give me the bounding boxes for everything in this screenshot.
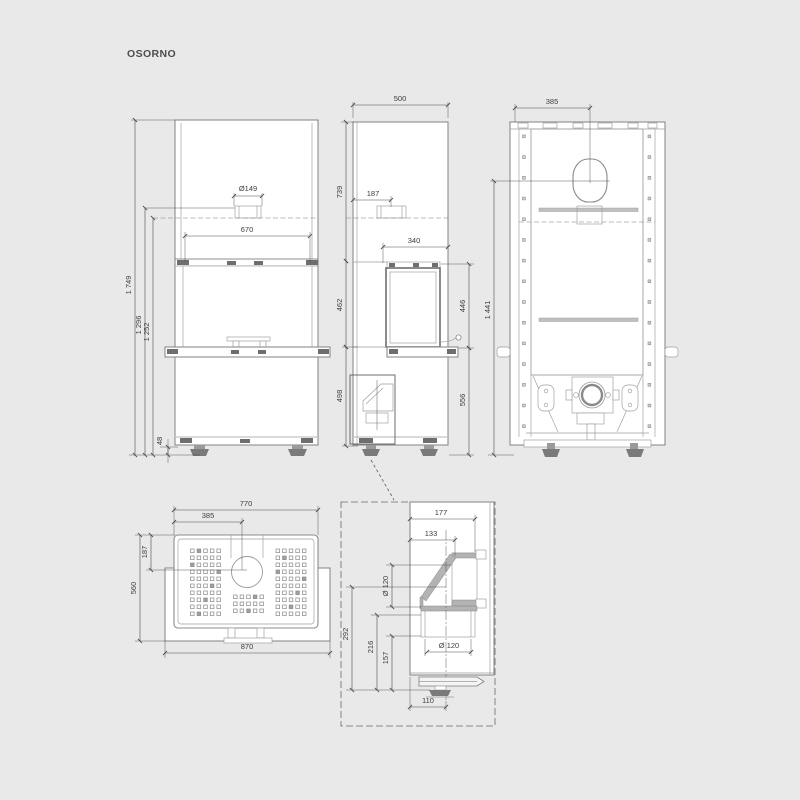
generated-detail bbox=[217, 556, 221, 560]
generated-detail bbox=[276, 556, 280, 560]
generated-detail bbox=[289, 598, 293, 602]
generated-detail bbox=[191, 556, 195, 560]
generated-detail bbox=[296, 584, 300, 588]
generated-detail bbox=[197, 570, 201, 574]
generated-detail bbox=[197, 563, 201, 567]
generated-detail bbox=[253, 602, 257, 606]
generated-detail bbox=[210, 570, 214, 574]
dim-detail-216: 216 bbox=[366, 641, 375, 654]
generated-detail bbox=[197, 556, 201, 560]
generated-detail bbox=[234, 595, 238, 599]
generated-detail bbox=[648, 218, 651, 221]
dim-top-flue-x: 385 bbox=[202, 511, 215, 520]
generated-detail bbox=[191, 549, 195, 553]
generated-detail bbox=[296, 563, 300, 567]
generated-detail bbox=[234, 609, 238, 613]
generated-detail bbox=[197, 577, 201, 581]
generated-detail bbox=[302, 605, 306, 609]
generated-detail bbox=[296, 591, 300, 595]
generated-detail bbox=[217, 598, 221, 602]
generated-detail bbox=[289, 570, 293, 574]
generated-detail bbox=[296, 598, 300, 602]
front-firebox-opening bbox=[183, 266, 312, 347]
generated-detail bbox=[296, 556, 300, 560]
generated-detail bbox=[523, 176, 526, 179]
drawing-title: OSORNO bbox=[127, 48, 176, 60]
generated-detail bbox=[197, 605, 201, 609]
generated-detail bbox=[260, 595, 264, 599]
dim-front-total-height: 1 749 bbox=[124, 276, 133, 295]
generated-detail bbox=[276, 612, 280, 616]
side-flue-collar bbox=[377, 206, 406, 218]
generated-detail bbox=[197, 584, 201, 588]
generated-detail bbox=[204, 577, 208, 581]
dim-rear-flue-offset: 385 bbox=[546, 97, 559, 106]
dim-detail-depth: 177 bbox=[435, 508, 448, 517]
generated-detail bbox=[276, 570, 280, 574]
front-shelf bbox=[165, 347, 330, 357]
generated-detail bbox=[217, 549, 221, 553]
generated-detail bbox=[240, 595, 244, 599]
dim-side-depth: 500 bbox=[394, 94, 407, 103]
generated-detail bbox=[210, 556, 214, 560]
side-door-glass bbox=[386, 268, 440, 347]
generated-detail bbox=[296, 605, 300, 609]
generated-detail bbox=[523, 135, 526, 138]
generated-detail bbox=[648, 342, 651, 345]
generated-detail bbox=[296, 549, 300, 553]
generated-detail bbox=[191, 605, 195, 609]
generated-detail bbox=[276, 598, 280, 602]
generated-detail bbox=[247, 595, 251, 599]
generated-detail bbox=[302, 591, 306, 595]
generated-detail bbox=[523, 363, 526, 366]
generated-detail bbox=[523, 425, 526, 428]
generated-detail bbox=[197, 598, 201, 602]
generated-detail bbox=[648, 197, 651, 200]
generated-detail bbox=[276, 563, 280, 567]
generated-detail bbox=[204, 598, 208, 602]
dim-rear-connection-height: 1 441 bbox=[483, 301, 492, 320]
generated-detail bbox=[247, 602, 251, 606]
rear-brace-upper bbox=[539, 208, 638, 212]
generated-detail bbox=[217, 563, 221, 567]
generated-detail bbox=[289, 577, 293, 581]
dim-detail-inner-depth: 133 bbox=[425, 529, 438, 538]
generated-detail bbox=[289, 549, 293, 553]
generated-detail bbox=[210, 549, 214, 553]
generated-detail bbox=[523, 301, 526, 304]
generated-detail bbox=[523, 156, 526, 159]
detail-bottom-duct bbox=[421, 611, 475, 637]
generated-detail bbox=[296, 577, 300, 581]
generated-detail bbox=[276, 549, 280, 553]
generated-detail bbox=[191, 591, 195, 595]
generated-detail bbox=[283, 612, 287, 616]
generated-detail bbox=[260, 602, 264, 606]
generated-detail bbox=[247, 609, 251, 613]
generated-detail bbox=[217, 605, 221, 609]
generated-detail bbox=[204, 584, 208, 588]
generated-detail bbox=[289, 591, 293, 595]
generated-detail bbox=[217, 591, 221, 595]
generated-detail bbox=[302, 577, 306, 581]
dim-side-door-height-right: 446 bbox=[458, 300, 467, 313]
generated-detail bbox=[204, 612, 208, 616]
generated-detail bbox=[210, 584, 214, 588]
dim-front-flue-center-height: 1 252 bbox=[142, 323, 151, 342]
dim-side-upper-height: 739 bbox=[335, 186, 344, 199]
dim-detail-pipe-diameter: Ø 120 bbox=[381, 576, 390, 596]
generated-detail bbox=[648, 321, 651, 324]
generated-detail bbox=[204, 556, 208, 560]
generated-detail bbox=[302, 570, 306, 574]
dim-detail-duct-diameter: Ø 120 bbox=[439, 641, 459, 650]
generated-detail bbox=[302, 584, 306, 588]
generated-detail bbox=[276, 591, 280, 595]
dim-side-flue-offset: 187 bbox=[367, 189, 380, 198]
generated-detail bbox=[289, 605, 293, 609]
generated-detail bbox=[523, 280, 526, 283]
generated-detail bbox=[276, 584, 280, 588]
generated-detail bbox=[276, 605, 280, 609]
generated-detail bbox=[260, 609, 264, 613]
generated-detail bbox=[648, 156, 651, 159]
generated-detail bbox=[234, 602, 238, 606]
dim-side-front-depth: 340 bbox=[408, 236, 421, 245]
dim-front-foot-height: 48 bbox=[155, 437, 164, 445]
generated-detail bbox=[648, 404, 651, 407]
generated-detail bbox=[648, 383, 651, 386]
dim-detail-110: 110 bbox=[422, 696, 434, 705]
generated-detail bbox=[289, 612, 293, 616]
generated-detail bbox=[283, 591, 287, 595]
generated-detail bbox=[523, 404, 526, 407]
generated-detail bbox=[204, 591, 208, 595]
generated-detail bbox=[210, 612, 214, 616]
dim-side-base-height-left: 498 bbox=[335, 390, 344, 403]
generated-detail bbox=[191, 584, 195, 588]
generated-detail bbox=[240, 609, 244, 613]
generated-detail bbox=[302, 556, 306, 560]
generated-detail bbox=[217, 584, 221, 588]
generated-detail bbox=[210, 605, 214, 609]
generated-detail bbox=[283, 584, 287, 588]
dim-top-flue-y: 187 bbox=[140, 546, 149, 559]
generated-detail bbox=[283, 549, 287, 553]
generated-detail bbox=[253, 609, 257, 613]
dim-top-shelf-width: 870 bbox=[241, 642, 254, 651]
generated-detail bbox=[302, 612, 306, 616]
generated-detail bbox=[648, 239, 651, 242]
generated-detail bbox=[210, 598, 214, 602]
generated-detail bbox=[302, 549, 306, 553]
generated-detail bbox=[217, 577, 221, 581]
generated-detail bbox=[648, 135, 651, 138]
dim-side-door-height-left: 462 bbox=[335, 299, 344, 312]
generated-detail bbox=[204, 563, 208, 567]
dim-side-base-height-right: 556 bbox=[458, 394, 467, 407]
generated-detail bbox=[523, 218, 526, 221]
generated-detail bbox=[283, 577, 287, 581]
generated-detail bbox=[648, 301, 651, 304]
osorno-dimension-drawing: OSORNO bbox=[0, 0, 800, 800]
generated-detail bbox=[210, 563, 214, 567]
generated-detail bbox=[296, 612, 300, 616]
generated-detail bbox=[289, 556, 293, 560]
generated-detail bbox=[302, 598, 306, 602]
generated-detail bbox=[523, 321, 526, 324]
dim-detail-292: 292 bbox=[341, 628, 350, 641]
generated-detail bbox=[648, 425, 651, 428]
generated-detail bbox=[283, 598, 287, 602]
generated-detail bbox=[648, 176, 651, 179]
technical-drawing-page: OSORNO bbox=[0, 0, 800, 800]
generated-detail bbox=[197, 591, 201, 595]
top-flue-hole bbox=[232, 557, 263, 588]
generated-detail bbox=[253, 595, 257, 599]
dim-front-opening-width: 670 bbox=[241, 225, 254, 234]
generated-detail bbox=[648, 259, 651, 262]
generated-detail bbox=[648, 280, 651, 283]
generated-detail bbox=[197, 549, 201, 553]
generated-detail bbox=[191, 563, 195, 567]
generated-detail bbox=[217, 570, 221, 574]
generated-detail bbox=[283, 563, 287, 567]
generated-detail bbox=[283, 570, 287, 574]
generated-detail bbox=[289, 584, 293, 588]
generated-detail bbox=[204, 605, 208, 609]
generated-detail bbox=[191, 570, 195, 574]
dim-detail-157: 157 bbox=[381, 652, 390, 665]
generated-detail bbox=[204, 549, 208, 553]
dim-top-body-width: 770 bbox=[240, 499, 253, 508]
generated-detail bbox=[283, 556, 287, 560]
generated-detail bbox=[197, 612, 201, 616]
rear-view: 385 1 441 bbox=[483, 97, 678, 457]
generated-detail bbox=[523, 383, 526, 386]
generated-detail bbox=[523, 239, 526, 242]
generated-detail bbox=[191, 612, 195, 616]
generated-detail bbox=[191, 598, 195, 602]
generated-detail bbox=[210, 577, 214, 581]
generated-detail bbox=[523, 342, 526, 345]
generated-detail bbox=[210, 591, 214, 595]
dim-front-flue-diameter: Ø149 bbox=[239, 184, 257, 193]
generated-detail bbox=[276, 577, 280, 581]
generated-detail bbox=[191, 577, 195, 581]
generated-detail bbox=[648, 363, 651, 366]
generated-detail bbox=[283, 605, 287, 609]
generated-detail bbox=[217, 612, 221, 616]
generated-detail bbox=[302, 563, 306, 567]
generated-detail bbox=[289, 563, 293, 567]
generated-detail bbox=[204, 570, 208, 574]
generated-detail bbox=[523, 259, 526, 262]
dim-top-depth: 560 bbox=[129, 582, 138, 595]
generated-detail bbox=[523, 197, 526, 200]
generated-detail bbox=[240, 602, 244, 606]
generated-detail bbox=[296, 570, 300, 574]
rear-brace-lower bbox=[539, 318, 638, 322]
